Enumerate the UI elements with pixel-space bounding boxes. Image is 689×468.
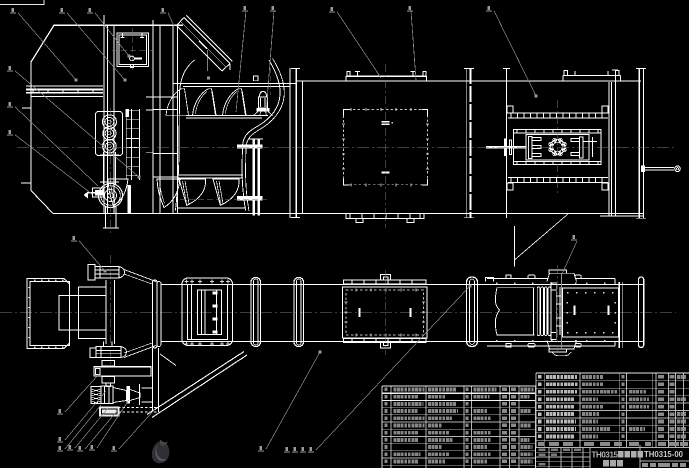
svg-text:TH0315-00: TH0315-00 bbox=[644, 450, 684, 459]
svg-text:TH0315: TH0315 bbox=[592, 451, 619, 460]
